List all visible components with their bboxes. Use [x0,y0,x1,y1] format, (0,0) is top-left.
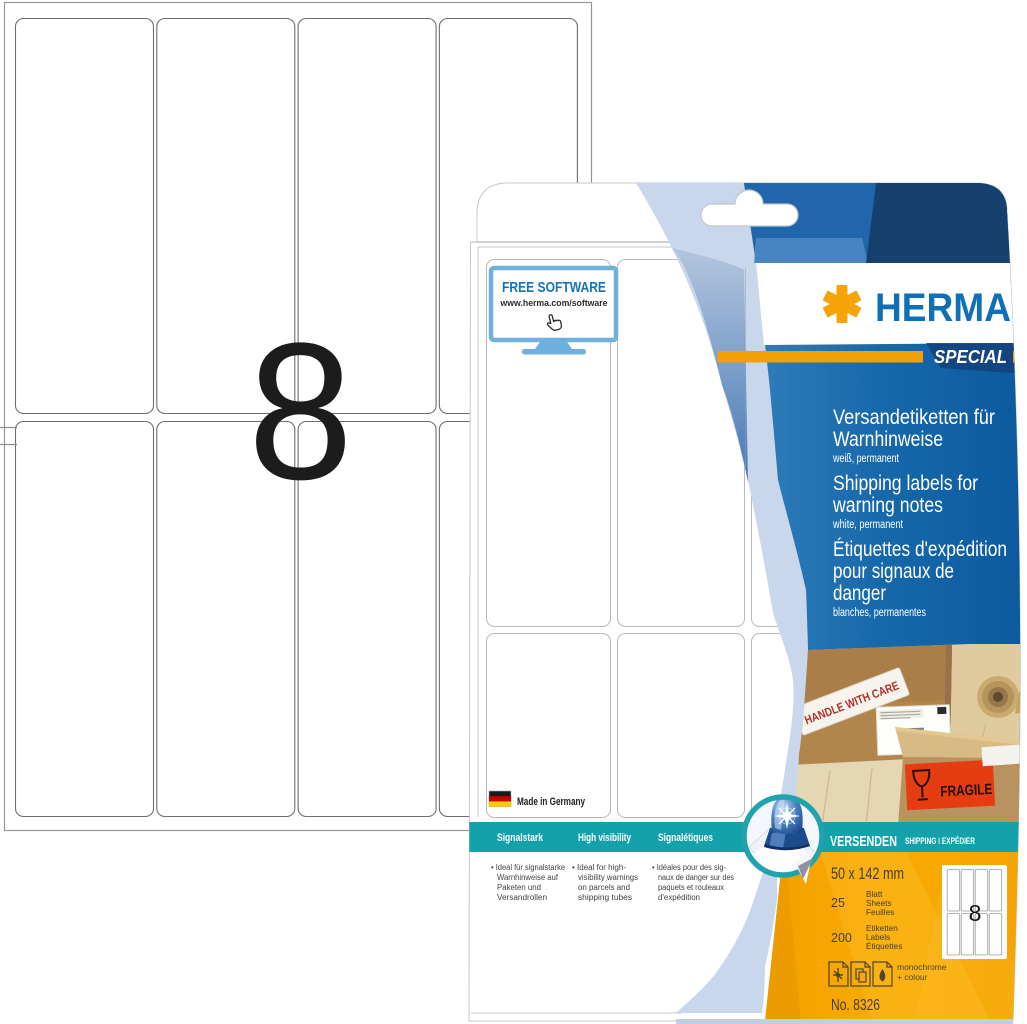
svg-text:Shipping labels for: Shipping labels for [833,471,978,495]
svg-text:HERMA: HERMA [875,286,1011,330]
svg-text:Labels: Labels [866,933,890,942]
svg-text:weiß, permanent: weiß, permanent [832,453,899,465]
svg-text:danger: danger [833,581,886,605]
svg-text:Feuilles: Feuilles [866,908,894,917]
svg-text:50 x 142 mm: 50 x 142 mm [831,864,904,883]
svg-text:pour signaux de: pour signaux de [833,559,954,583]
svg-text:visibility warnings: visibility warnings [578,873,638,882]
svg-text:• Idéales pour des sig-: • Idéales pour des sig- [652,863,726,872]
svg-text:Étiquettes d'expédition: Étiquettes d'expédition [833,536,1007,561]
svg-text:naux de danger sur des: naux de danger sur des [658,873,734,882]
svg-text:shipping tubes: shipping tubes [578,893,632,902]
svg-text:monochrome: monochrome [897,962,947,972]
svg-text:25: 25 [831,896,845,910]
svg-text:200: 200 [831,931,852,945]
svg-text:Warnhinweise: Warnhinweise [833,427,943,451]
svg-text:d'expédition: d'expédition [658,893,700,902]
svg-text:+ colour: + colour [897,972,928,982]
svg-text:www.herma.com/software: www.herma.com/software [500,298,608,309]
svg-text:• Ideal für signalstarke: • Ideal für signalstarke [491,863,566,872]
svg-text:8: 8 [969,900,982,926]
svg-text:SHIPPING ǀ EXPÉDIER: SHIPPING ǀ EXPÉDIER [905,836,975,846]
svg-text:FREE SOFTWARE: FREE SOFTWARE [502,280,606,296]
svg-text:8: 8 [248,302,353,520]
svg-text:white, permanent: white, permanent [832,519,903,531]
svg-text:on parcels and: on parcels and [578,883,630,892]
svg-text:paquets et rouleaux: paquets et rouleaux [658,883,724,892]
svg-text:Signalstark: Signalstark [497,832,544,844]
svg-text:FRAGILE: FRAGILE [940,781,993,801]
svg-text:Etiketten: Etiketten [866,924,898,933]
svg-text:Blatt: Blatt [866,890,883,899]
svg-text:SPECIAL: SPECIAL [934,346,1007,367]
svg-text:No. 8326: No. 8326 [831,997,880,1014]
svg-text:High visibility: High visibility [578,832,632,844]
svg-text:• Ideal for high-: • Ideal for high- [572,863,626,872]
svg-text:VERSENDEN: VERSENDEN [830,834,897,850]
svg-text:Signalétiques: Signalétiques [658,832,713,844]
svg-text:warning notes: warning notes [832,493,943,517]
svg-text:Étiquettes: Étiquettes [866,941,902,951]
svg-text:Sheets: Sheets [866,899,892,908]
svg-text:Made in Germany: Made in Germany [517,796,586,808]
svg-text:Versandetiketten für: Versandetiketten für [833,405,995,429]
svg-text:blanches, permanentes: blanches, permanentes [833,607,926,619]
svg-text:Warnhinweise auf: Warnhinweise auf [497,873,559,882]
svg-text:Paketen und: Paketen und [497,883,541,892]
svg-text:Versandrollen: Versandrollen [497,893,547,902]
